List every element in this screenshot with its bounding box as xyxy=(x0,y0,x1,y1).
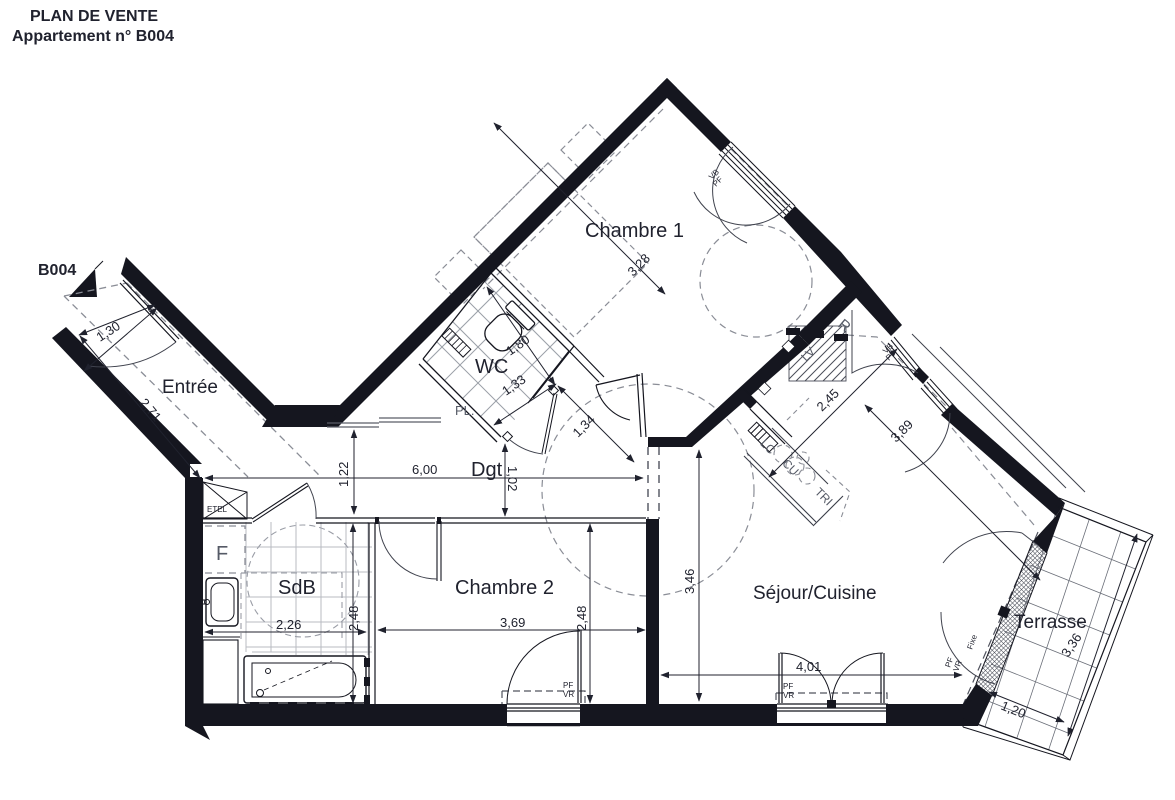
svg-text:SdB: SdB xyxy=(278,577,316,599)
svg-text:Dgt: Dgt xyxy=(471,459,503,481)
svg-text:3,89: 3,89 xyxy=(888,417,917,446)
svg-text:F: F xyxy=(216,543,228,565)
svg-text:PF: PF xyxy=(563,681,573,690)
svg-text:Appartement n° B004: Appartement n° B004 xyxy=(12,28,174,45)
svg-text:2,26: 2,26 xyxy=(276,617,301,632)
svg-text:Séjour/Cuisine: Séjour/Cuisine xyxy=(753,583,877,604)
svg-text:2,45: 2,45 xyxy=(814,386,843,415)
svg-text:1,34: 1,34 xyxy=(570,412,599,441)
svg-text:VR: VR xyxy=(783,691,794,700)
svg-text:TRI: TRI xyxy=(812,485,836,509)
svg-text:VR: VR xyxy=(563,690,574,699)
svg-text:Entrée: Entrée xyxy=(162,377,218,398)
svg-text:PL.: PL. xyxy=(455,403,475,418)
svg-text:1,02: 1,02 xyxy=(505,466,520,491)
svg-text:1,30: 1,30 xyxy=(93,318,122,344)
svg-text:ETEL: ETEL xyxy=(207,505,228,514)
svg-text:Fixe: Fixe xyxy=(965,633,979,651)
svg-text:3,46: 3,46 xyxy=(682,569,697,594)
svg-text:R: R xyxy=(835,316,854,336)
svg-text:Terrasse: Terrasse xyxy=(1014,612,1087,633)
svg-text:Chambre 1: Chambre 1 xyxy=(585,220,684,242)
svg-text:Chambre 2: Chambre 2 xyxy=(455,577,554,599)
svg-text:6,00: 6,00 xyxy=(412,462,437,477)
svg-text:B004: B004 xyxy=(38,262,76,279)
svg-text:PLAN DE VENTE: PLAN DE VENTE xyxy=(30,8,158,25)
svg-text:LC: LC xyxy=(757,436,778,457)
svg-text:2,48: 2,48 xyxy=(574,606,589,631)
svg-text:PF: PF xyxy=(783,682,793,691)
svg-text:1,22: 1,22 xyxy=(336,462,351,487)
svg-text:3,69: 3,69 xyxy=(500,615,525,630)
svg-text:4,01: 4,01 xyxy=(796,659,821,674)
svg-text:3,28: 3,28 xyxy=(625,251,654,280)
svg-text:2,48: 2,48 xyxy=(346,606,361,631)
svg-text:CU: CU xyxy=(779,456,801,478)
svg-text:3,36: 3,36 xyxy=(1058,630,1085,659)
svg-text:1,20: 1,20 xyxy=(999,698,1028,721)
svg-text:WC: WC xyxy=(475,356,508,378)
